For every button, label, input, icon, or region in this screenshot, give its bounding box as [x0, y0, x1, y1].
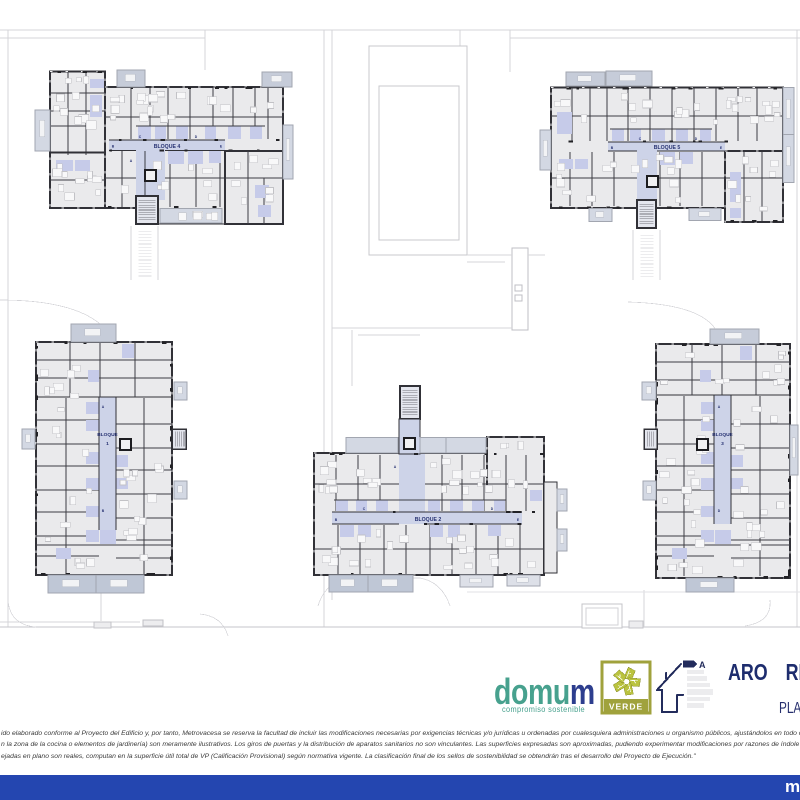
svg-text:BLOQUE 2: BLOQUE 2: [415, 517, 442, 523]
svg-text:BLOQUE 5: BLOQUE 5: [654, 145, 681, 151]
svg-text:BLOQUE 4: BLOQUE 4: [154, 144, 181, 150]
svg-text:1: 1: [106, 441, 109, 447]
svg-text:BLOQUE: BLOQUE: [712, 432, 733, 438]
svg-text:A: A: [699, 660, 706, 670]
svg-text:3: 3: [721, 441, 724, 447]
svg-text:BLOQUE: BLOQUE: [97, 432, 118, 438]
